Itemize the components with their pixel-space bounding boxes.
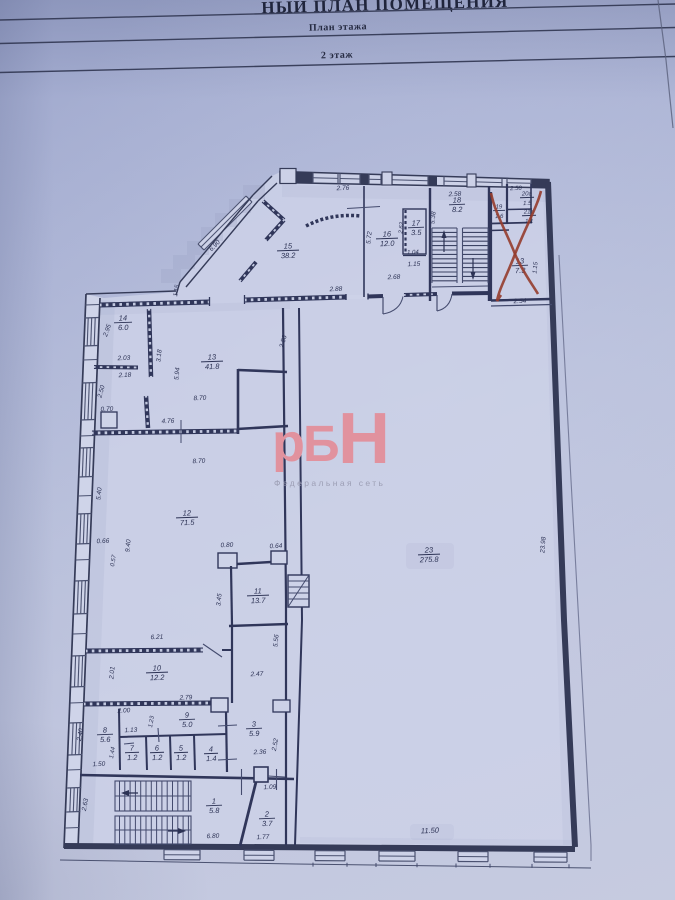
- svg-text:5.9: 5.9: [249, 729, 261, 738]
- svg-text:Б: Б: [303, 415, 340, 472]
- svg-text:4.76: 4.76: [161, 418, 174, 426]
- svg-text:1.5: 1.5: [523, 201, 532, 207]
- svg-text:16: 16: [383, 229, 392, 238]
- svg-text:1.09: 1.09: [263, 784, 276, 792]
- svg-text:38.2: 38.2: [281, 251, 297, 261]
- svg-text:13.7: 13.7: [251, 596, 267, 606]
- svg-text:2.76: 2.76: [335, 185, 349, 193]
- svg-text:5.6: 5.6: [100, 735, 112, 744]
- svg-text:1: 1: [212, 796, 216, 805]
- svg-text:2 этаж: 2 этаж: [321, 50, 354, 62]
- svg-text:1.4: 1.4: [206, 754, 217, 763]
- svg-text:71.5: 71.5: [180, 518, 196, 528]
- svg-text:2.03: 2.03: [116, 355, 130, 363]
- svg-text:41.8: 41.8: [205, 362, 221, 372]
- svg-text:1.2: 1.2: [127, 753, 139, 762]
- svg-text:5.8: 5.8: [209, 806, 221, 815]
- svg-text:15: 15: [284, 241, 293, 250]
- svg-text:14: 14: [119, 313, 128, 322]
- svg-text:1.13: 1.13: [124, 727, 137, 735]
- svg-text:0.64: 0.64: [269, 543, 282, 551]
- svg-text:3.45: 3.45: [215, 593, 223, 607]
- svg-text:2.54: 2.54: [512, 298, 526, 306]
- svg-text:0.70: 0.70: [100, 406, 113, 414]
- svg-text:4: 4: [209, 744, 213, 753]
- svg-text:12.2: 12.2: [150, 673, 166, 683]
- svg-text:2.68: 2.68: [386, 274, 400, 282]
- svg-text:6.0: 6.0: [118, 323, 130, 332]
- svg-text:0.80: 0.80: [220, 542, 233, 550]
- svg-text:р: р: [272, 413, 305, 473]
- svg-text:8.2: 8.2: [452, 205, 464, 214]
- svg-text:0.66: 0.66: [96, 538, 109, 546]
- svg-text:10: 10: [153, 663, 162, 672]
- svg-text:3.5: 3.5: [411, 228, 423, 237]
- svg-text:5.0: 5.0: [182, 720, 194, 729]
- svg-text:1.50: 1.50: [92, 761, 105, 769]
- svg-text:3.18: 3.18: [155, 349, 163, 363]
- svg-text:5.38: 5.38: [429, 211, 437, 225]
- svg-text:13: 13: [208, 352, 217, 361]
- svg-text:1.2: 1.2: [176, 753, 188, 762]
- svg-text:1.2: 1.2: [152, 753, 164, 762]
- svg-text:2.88: 2.88: [328, 286, 342, 294]
- svg-text:3.7: 3.7: [262, 819, 274, 828]
- svg-text:2.58: 2.58: [447, 191, 461, 199]
- svg-text:План этажа: План этажа: [309, 21, 368, 34]
- svg-text:2.00: 2.00: [116, 707, 130, 715]
- svg-text:2.18: 2.18: [117, 372, 131, 380]
- svg-text:8.70: 8.70: [193, 395, 206, 403]
- svg-text:2.79: 2.79: [178, 694, 192, 702]
- svg-text:8.70: 8.70: [192, 458, 205, 466]
- svg-text:23.98: 23.98: [539, 536, 547, 554]
- svg-text:5.94: 5.94: [173, 367, 181, 381]
- svg-text:11.50: 11.50: [421, 826, 440, 836]
- svg-text:1.15: 1.15: [532, 261, 539, 274]
- svg-text:2.01: 2.01: [108, 666, 116, 681]
- svg-text:Федеральная сеть: Федеральная сеть: [274, 478, 385, 488]
- svg-text:275.8: 275.8: [419, 555, 440, 565]
- svg-text:1.15: 1.15: [407, 261, 420, 269]
- svg-text:12.0: 12.0: [380, 239, 396, 249]
- svg-text:9.40: 9.40: [124, 539, 132, 553]
- svg-text:20a: 20a: [521, 191, 533, 197]
- svg-text:2.58: 2.58: [509, 186, 523, 193]
- svg-text:5.40: 5.40: [95, 487, 103, 501]
- svg-text:Н: Н: [338, 399, 390, 479]
- svg-text:6.21: 6.21: [150, 634, 163, 642]
- svg-text:2.36: 2.36: [252, 749, 266, 757]
- svg-text:23: 23: [424, 545, 434, 554]
- svg-text:5.56: 5.56: [272, 634, 280, 648]
- svg-text:17: 17: [412, 218, 421, 227]
- svg-text:1.04: 1.04: [407, 250, 420, 257]
- svg-text:6.80: 6.80: [206, 833, 219, 841]
- svg-text:2.47: 2.47: [249, 671, 263, 679]
- svg-text:5.72: 5.72: [365, 231, 373, 245]
- svg-text:12: 12: [183, 508, 192, 517]
- svg-text:1.77: 1.77: [256, 834, 269, 842]
- svg-text:11: 11: [254, 586, 262, 595]
